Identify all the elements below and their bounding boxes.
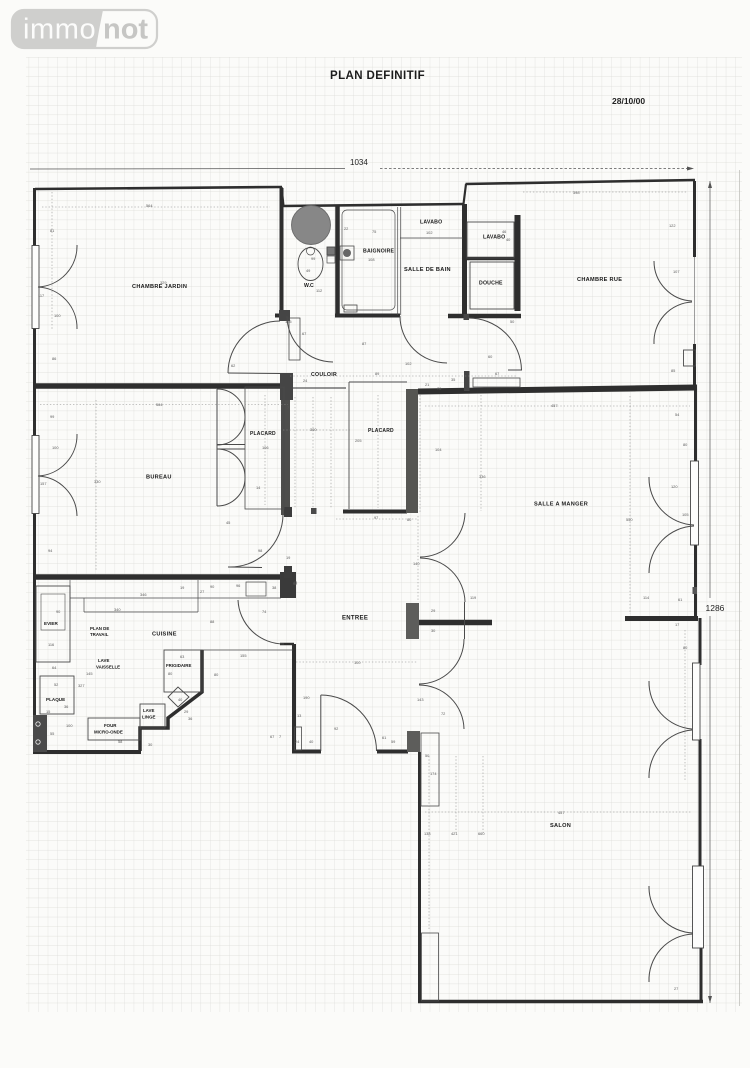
- svg-text:immo: immo: [23, 14, 96, 46]
- svg-text:PLAN DEFINITIF: PLAN DEFINITIF: [330, 70, 425, 82]
- svg-text:28/10/00: 28/10/00: [612, 96, 645, 106]
- svg-text:not: not: [103, 14, 148, 46]
